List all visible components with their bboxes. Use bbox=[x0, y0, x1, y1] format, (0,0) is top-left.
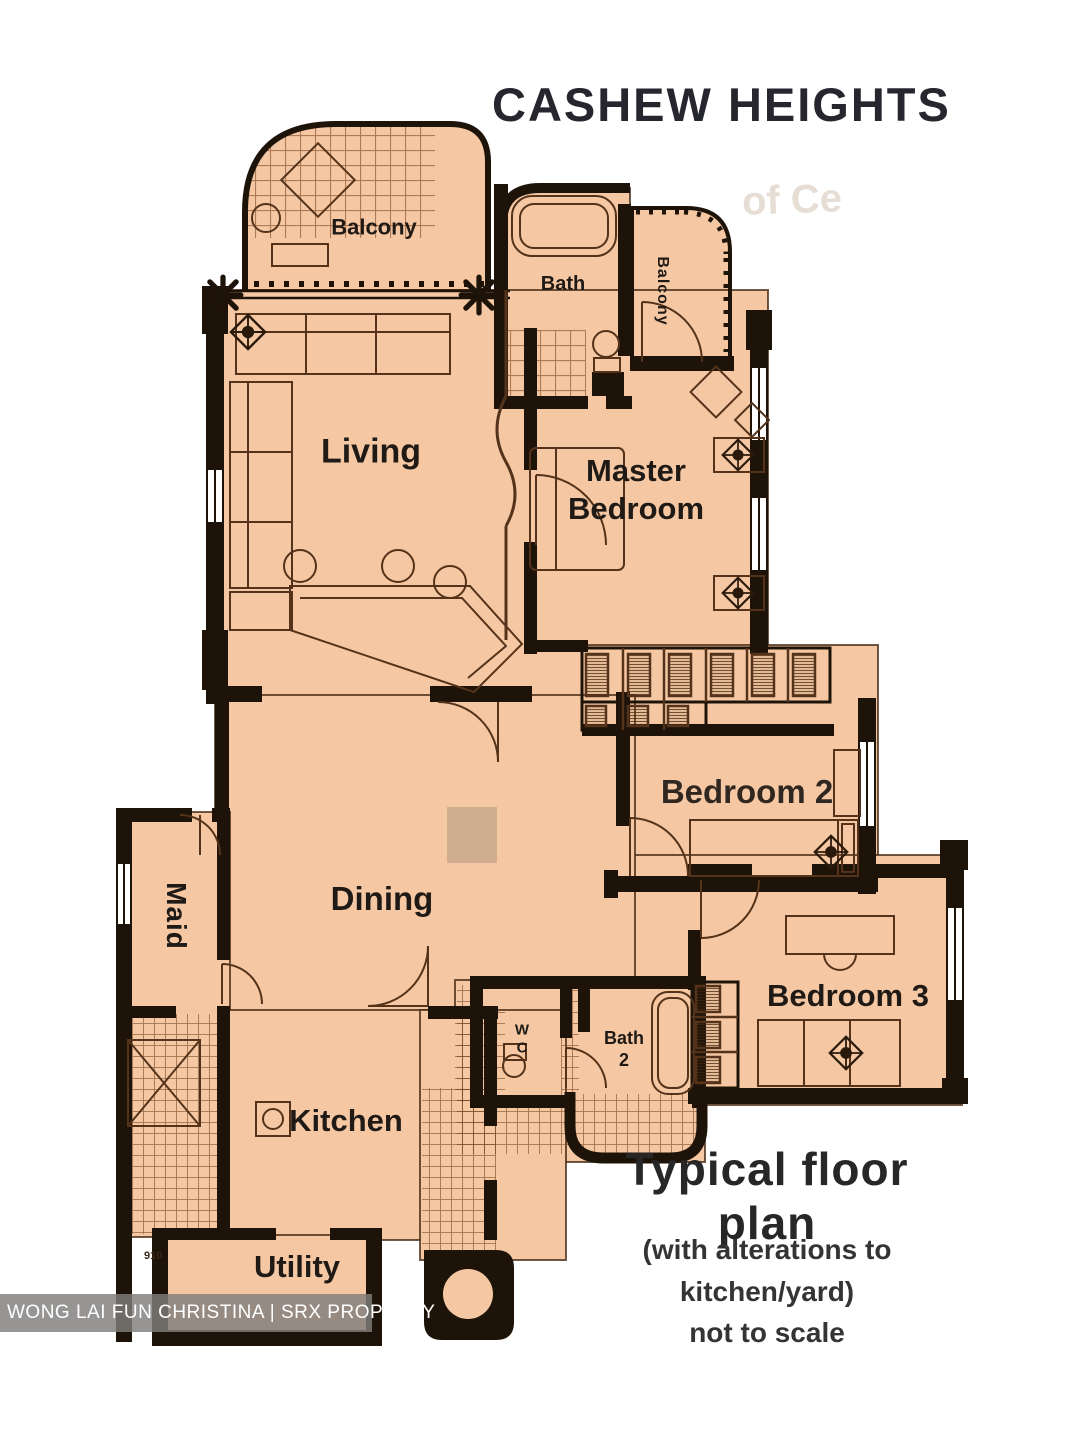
plan-small-number: 910 bbox=[144, 1250, 162, 1262]
room-label-bath2: Bath 2 bbox=[597, 1028, 651, 1072]
room-label-master-bedroom: Master Bedroom bbox=[541, 452, 731, 528]
porch-column bbox=[443, 1269, 493, 1319]
plant-icon bbox=[461, 277, 497, 313]
caption-line1: (with alterations to bbox=[643, 1234, 892, 1266]
window-bedroom2-east bbox=[860, 742, 874, 826]
room-label-bedroom2: Bedroom 2 bbox=[661, 772, 833, 812]
window-west-wall bbox=[118, 864, 130, 924]
room-label-living: Living bbox=[321, 431, 421, 472]
room-label-wc: W C bbox=[513, 1022, 531, 1059]
room-label-balcony-right: Balcony bbox=[652, 256, 672, 325]
dining-ghost-shadow bbox=[447, 807, 497, 863]
room-label-kitchen: Kitchen bbox=[289, 1102, 403, 1140]
room-label-utility: Utility bbox=[254, 1248, 340, 1286]
ghost-watermark-text: of Ce bbox=[741, 176, 843, 224]
watermark-text: WONG LAI FUN CHRISTINA | SRX PROPERTY bbox=[7, 1302, 435, 1324]
window-bedroom3-east bbox=[948, 908, 962, 1000]
room-label-maid: Maid bbox=[159, 882, 193, 950]
room-label-bedroom3: Bedroom 3 bbox=[767, 977, 929, 1015]
room-label-bath-top: Bath bbox=[541, 272, 585, 296]
window-living-west bbox=[208, 470, 222, 522]
plant-icon bbox=[205, 277, 241, 313]
room-label-balcony-top: Balcony bbox=[331, 215, 417, 242]
page-title: CASHEW HEIGHTS bbox=[492, 76, 944, 133]
caption-line2: kitchen/yard) bbox=[680, 1276, 854, 1308]
caption-line3: not to scale bbox=[689, 1317, 845, 1349]
watermark-bar: WONG LAI FUN CHRISTINA | SRX PROPERTY bbox=[0, 1294, 372, 1332]
room-label-dining: Dining bbox=[331, 879, 434, 919]
